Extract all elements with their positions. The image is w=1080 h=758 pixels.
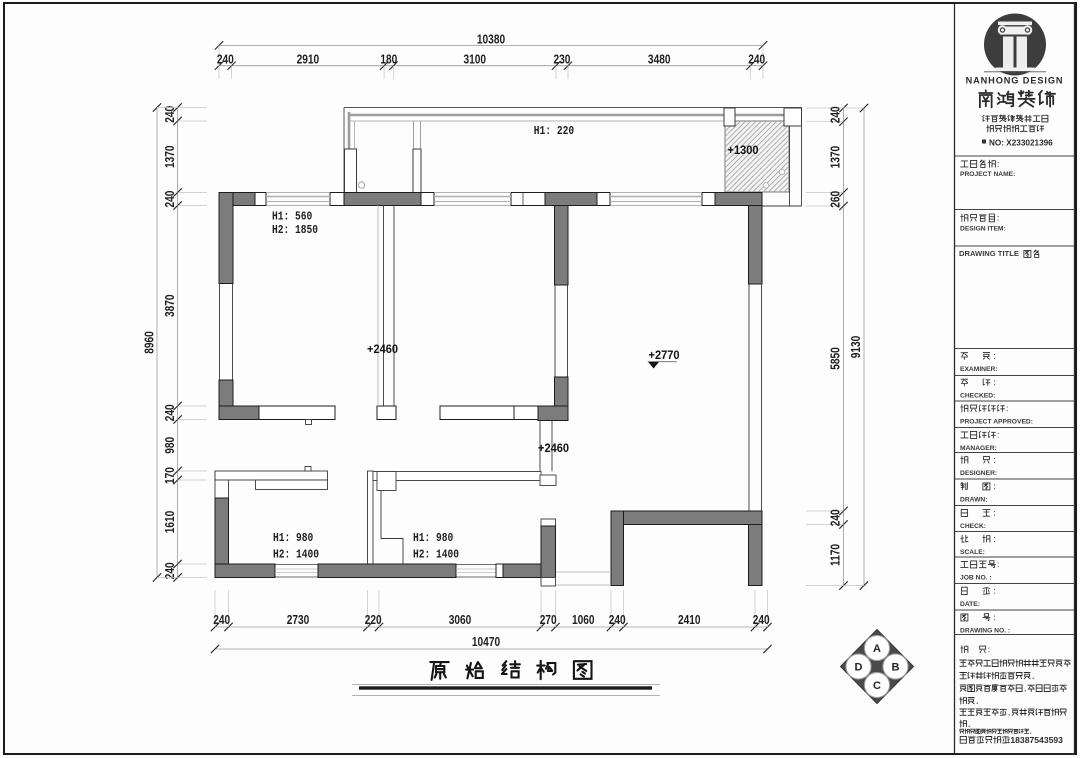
svg-text:2910: 2910 [297, 52, 320, 66]
svg-text:A: A [873, 643, 881, 655]
svg-text:9130: 9130 [849, 336, 863, 359]
svg-text:H1: 980: H1: 980 [273, 532, 313, 545]
svg-text:240: 240 [609, 613, 626, 627]
svg-text:1370: 1370 [828, 146, 842, 169]
svg-text:980: 980 [163, 437, 177, 454]
svg-text:C: C [873, 680, 881, 692]
svg-text:3060: 3060 [449, 613, 472, 627]
svg-text:H1: 220: H1: 220 [534, 125, 574, 138]
svg-text:240: 240 [163, 404, 177, 421]
svg-text:+1300: +1300 [728, 144, 759, 156]
svg-text:240: 240 [828, 106, 842, 123]
svg-text:H2: 1400: H2: 1400 [413, 549, 459, 562]
svg-text:1060: 1060 [572, 613, 595, 627]
svg-text:DRAWING TITLE: DRAWING TITLE [959, 249, 1019, 258]
svg-text:H1: 980: H1: 980 [413, 532, 453, 545]
svg-text:240: 240 [213, 613, 230, 627]
svg-text:3870: 3870 [163, 294, 177, 317]
svg-text:240: 240 [217, 52, 234, 66]
svg-text:240: 240 [163, 562, 177, 579]
svg-text:PROJECT APPROVED:: PROJECT APPROVED: [960, 419, 1033, 426]
svg-text:+2770: +2770 [649, 350, 680, 362]
svg-text:+2460: +2460 [367, 343, 398, 355]
svg-text:JOB NO. :: JOB NO. : [960, 575, 992, 582]
svg-text:220: 220 [365, 613, 382, 627]
svg-text:240: 240 [163, 191, 177, 208]
svg-text:B: B [892, 662, 900, 674]
svg-text:1610: 1610 [163, 511, 177, 534]
svg-text:230: 230 [554, 52, 571, 66]
svg-text:1370: 1370 [163, 145, 177, 168]
svg-text:D: D [855, 662, 863, 674]
svg-text:10470: 10470 [472, 635, 500, 649]
svg-text:H2: 1400: H2: 1400 [273, 549, 319, 562]
svg-text:+2460: +2460 [538, 443, 569, 455]
svg-text:DESIGNER:: DESIGNER: [960, 470, 997, 477]
svg-text:2410: 2410 [678, 613, 701, 627]
svg-text:170: 170 [163, 467, 177, 484]
svg-text:2730: 2730 [287, 613, 310, 627]
svg-text:5850: 5850 [828, 347, 842, 370]
svg-text:3100: 3100 [463, 52, 486, 66]
svg-text:CHECK:: CHECK: [960, 523, 986, 530]
svg-text:DRAWN:: DRAWN: [960, 497, 988, 504]
svg-text:NANHONG DESIGN: NANHONG DESIGN [966, 76, 1064, 86]
svg-text:EXAMINER:: EXAMINER: [960, 366, 998, 373]
svg-text:8960: 8960 [142, 331, 156, 354]
svg-text:PROJECT NAME:: PROJECT NAME: [960, 171, 1015, 178]
svg-text:260: 260 [828, 191, 842, 208]
svg-text:240: 240 [748, 52, 765, 66]
svg-text:1170: 1170 [828, 544, 842, 566]
svg-text:H1: 560: H1: 560 [272, 211, 312, 224]
svg-text:NO: X233021396: NO: X233021396 [989, 139, 1053, 148]
svg-text:H2: 1850: H2: 1850 [272, 224, 318, 237]
svg-text:240: 240 [163, 106, 177, 123]
svg-text:SCALE:: SCALE: [960, 549, 985, 556]
svg-text:DATE:: DATE: [960, 601, 980, 608]
svg-text:240: 240 [828, 509, 842, 526]
svg-text:MANAGER:: MANAGER: [960, 445, 997, 452]
svg-text::18387543593: :18387543593 [1008, 735, 1064, 745]
svg-text:240: 240 [753, 613, 770, 627]
svg-text:3480: 3480 [648, 52, 671, 66]
svg-text:270: 270 [540, 613, 557, 627]
svg-text:180: 180 [380, 52, 397, 66]
svg-text:DESIGN ITEM:: DESIGN ITEM: [960, 226, 1006, 233]
svg-text:CHECKED:: CHECKED: [960, 393, 995, 400]
svg-text:DRAWING NO. :: DRAWING NO. : [960, 628, 1010, 635]
svg-text:10380: 10380 [477, 32, 505, 46]
